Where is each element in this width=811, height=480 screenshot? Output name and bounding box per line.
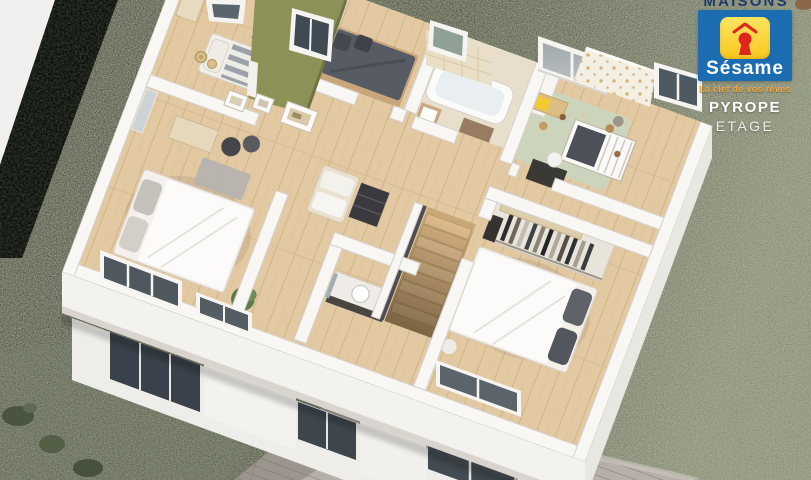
plan-model-name: PYROPE xyxy=(676,99,811,116)
brand-tagline: La clef de vos rêves xyxy=(676,84,811,94)
brand-logo: MAISONS Sésame La clef de vos rêves PYRO… xyxy=(676,0,811,134)
floorplan-3d-page: { "logo": { "brand_top": "MAISONS", "bra… xyxy=(0,0,811,480)
brand-name: Sésame xyxy=(698,58,792,80)
keyhole-icon xyxy=(720,17,770,59)
brand-square: Sésame xyxy=(698,10,792,81)
brand-wordmark-top: MAISONS xyxy=(676,0,811,10)
back-window-small xyxy=(206,0,246,24)
plan-level-label: ETAGE xyxy=(676,118,811,134)
